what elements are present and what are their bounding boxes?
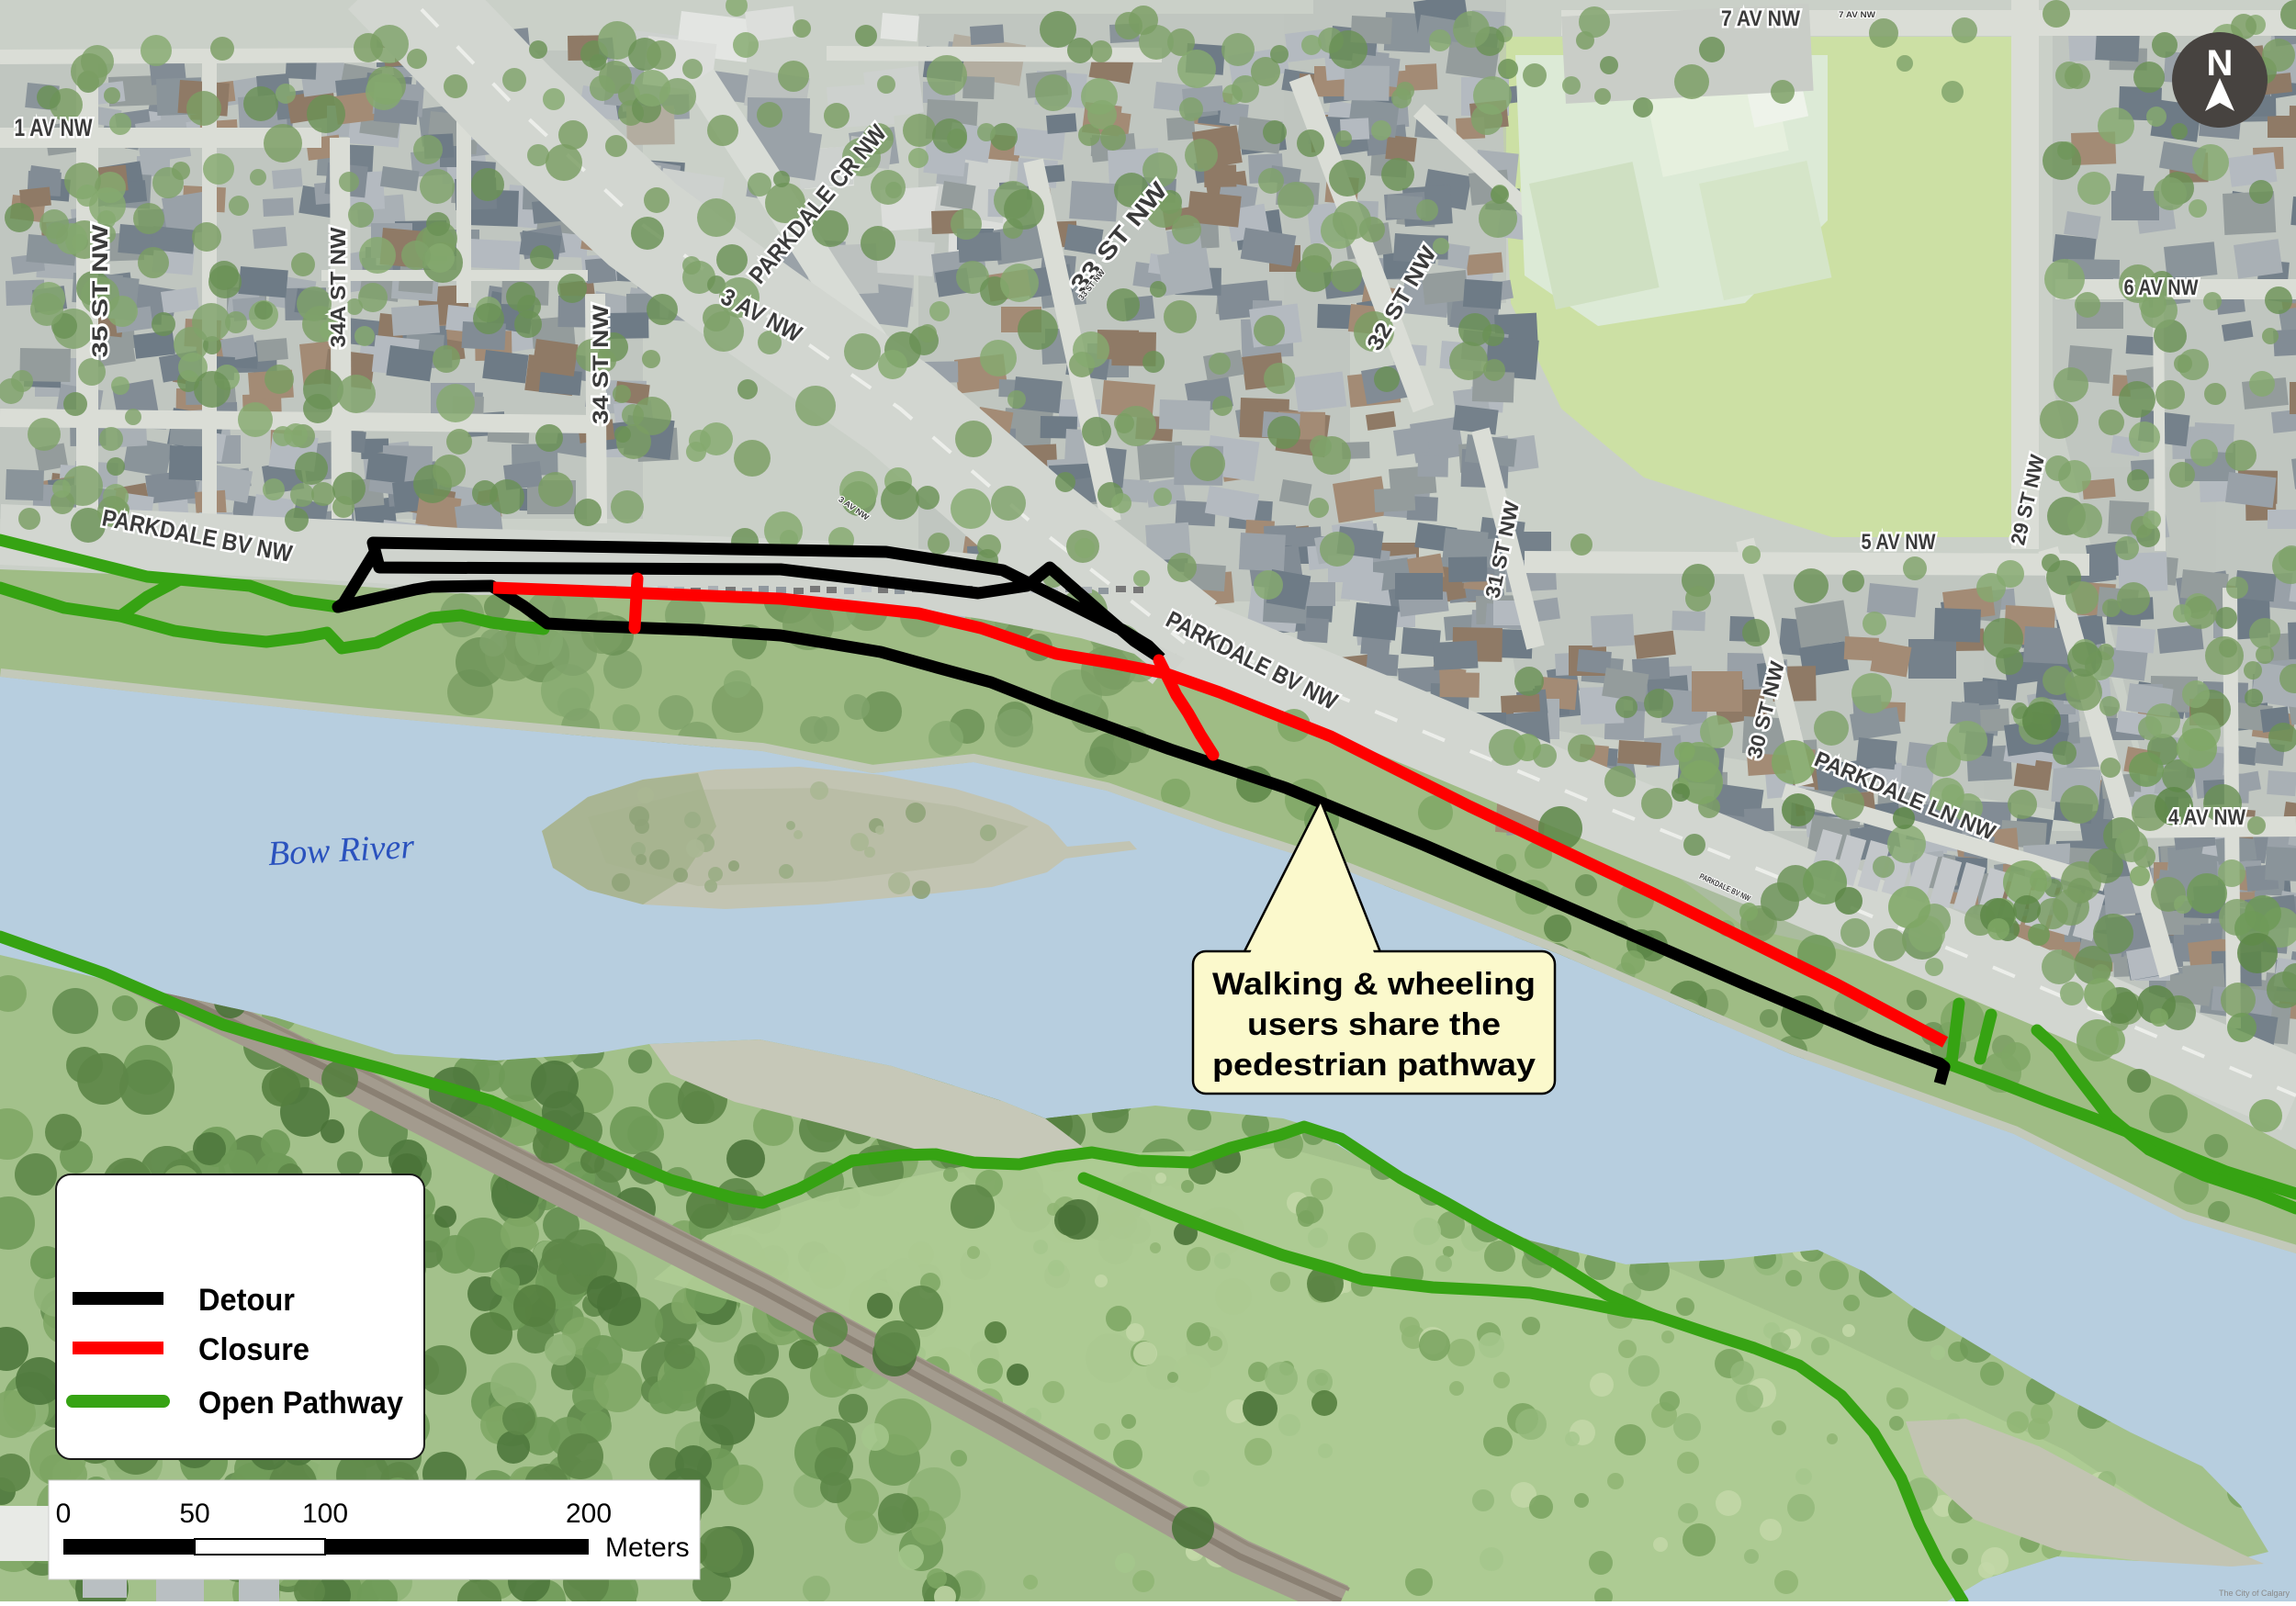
svg-text:Meters: Meters xyxy=(605,1533,690,1563)
svg-text:7 AV NW: 7 AV NW xyxy=(1839,10,1876,19)
svg-text:4 AV NW: 4 AV NW xyxy=(2168,805,2245,830)
svg-text:34 ST NW: 34 ST NW xyxy=(589,305,613,424)
svg-text:5 AV NW: 5 AV NW xyxy=(1862,530,1936,555)
svg-text:Detour: Detour xyxy=(198,1283,295,1318)
svg-text:50: 50 xyxy=(179,1499,209,1529)
svg-text:Open Pathway: Open Pathway xyxy=(198,1386,403,1421)
svg-text:35 ST NW: 35 ST NW xyxy=(88,224,113,357)
svg-text:Walking & wheeling: Walking & wheeling xyxy=(1212,967,1536,1002)
svg-text:7 AV NW: 7 AV NW xyxy=(1721,6,1800,31)
svg-text:Closure: Closure xyxy=(198,1332,310,1367)
svg-text:N: N xyxy=(2207,43,2234,84)
svg-text:pedestrian pathway: pedestrian pathway xyxy=(1212,1048,1536,1083)
svg-text:Bow River: Bow River xyxy=(267,827,416,873)
svg-text:6 AV NW: 6 AV NW xyxy=(2124,275,2199,300)
svg-text:The City of Calgary: The City of Calgary xyxy=(2219,1589,2290,1598)
svg-text:34A ST NW: 34A ST NW xyxy=(326,227,350,347)
svg-text:200: 200 xyxy=(566,1499,612,1529)
svg-text:100: 100 xyxy=(302,1499,348,1529)
svg-text:1 AV NW: 1 AV NW xyxy=(15,114,93,141)
svg-text:users share the: users share the xyxy=(1247,1007,1501,1042)
svg-text:0: 0 xyxy=(56,1499,72,1529)
